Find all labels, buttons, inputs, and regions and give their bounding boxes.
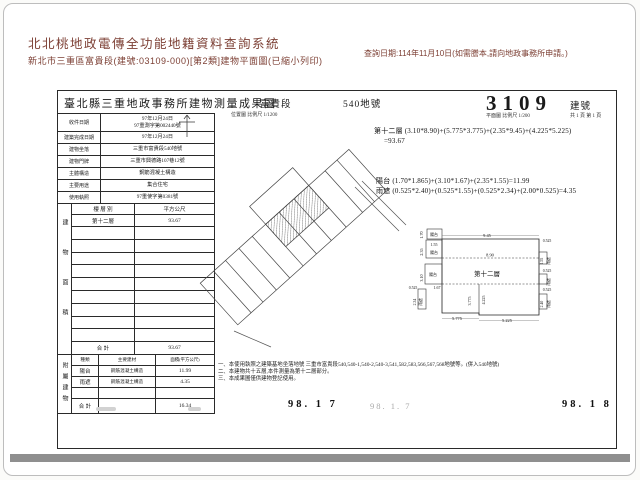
date-stamp-faint: 98. 1. 7 [370, 401, 412, 411]
document-subtitle: 新北市三重區富貴段(建號:03109-000)[第2類]建物平面圖(已縮小列印) [28, 54, 323, 67]
plan-label: 8.90 [486, 253, 494, 258]
note-line: 一、本使用執照之建築基地坐落地號 三重市富貴段540,540-1,540-2,5… [218, 362, 614, 369]
annex-area: 4.35 [156, 377, 214, 387]
plan-label: 4.225 [481, 296, 486, 305]
section-title-vertical: 附屬建物 [60, 362, 69, 406]
plan-label: 1.67 [434, 285, 441, 290]
plan-label: 0.525 [409, 286, 418, 290]
survey-form: 臺北縣三重地政事務所建物測量成果圖 富貴段 540地號 位置圖 比例尺 1/12… [57, 90, 617, 449]
parcel-number: 540地號 [343, 96, 381, 110]
column-header: 種類 [72, 355, 99, 365]
system-title: 北北桃地政電傳全功能地籍資料查詢系統 [28, 33, 280, 52]
plan-label: 雨遮 [546, 300, 551, 308]
floor-area-formula: 第十二層 (3.10*8.90)+(5.775*3.775)+(2.35*9.4… [374, 126, 571, 136]
total-label: 合 計 [72, 342, 135, 354]
plan-label: 陽台 [430, 231, 438, 237]
balcony-formula: 陽台 (1.70*1.865)+(3.10*1.67)+(2.35*1.55)=… [376, 176, 530, 186]
floor-plan-scale: 平面圖 比例尺 1/200 [486, 112, 530, 119]
row-label: 建物門牌 [58, 156, 101, 167]
building-number-unit: 建號 [570, 98, 591, 112]
floor-plan-labels: 1.70陽台2.351.55陽台9.450.5258.901.55雨遮3.10陽… [409, 231, 552, 323]
annex-kind: 雨遮 [72, 377, 99, 387]
notes-block: 一、本使用執照之建築基地坐落地號 三重市富貴段540,540-1,540-2,5… [218, 362, 614, 383]
page-count: 共 1 頁 第 1 頁 [570, 112, 601, 119]
dimension-lines [442, 236, 539, 321]
column-header: 主要建材 [99, 355, 156, 365]
row-label: 收件日期 [58, 114, 101, 131]
plan-label: 3.10 [419, 274, 424, 281]
section-name: 富貴段 [260, 96, 292, 110]
plan-label: 陽台 [429, 271, 437, 277]
plan-label: 雨遮 [418, 298, 423, 306]
plan-label: 2.34 [413, 299, 417, 306]
annex-area: 11.99 [156, 366, 214, 376]
plan-label: 0.525 [543, 288, 552, 292]
floor-name: 第十二層 [72, 215, 135, 226]
annex-kind: 陽台 [72, 366, 99, 376]
date-stamp: 98. 1 8 [562, 399, 612, 410]
table-row: 陽台 鋼筋混凝土構造 11.99 [72, 366, 214, 377]
plan-label: 2.40 [540, 301, 544, 308]
date-stamp: 98. 1 7 [288, 399, 338, 410]
plan-label: 5.775 [452, 316, 463, 321]
plan-label: 1.70 [419, 231, 424, 238]
query-date: 查詢日期:114年11月10日(如需謄本,請向地政事務所申請。) [364, 48, 568, 59]
row-label: 主要用途 [58, 180, 101, 191]
section-title-vertical: 建物面積 [60, 219, 69, 339]
north-symbol [179, 115, 195, 137]
plan-label: 2.35 [419, 248, 424, 255]
faint-stamp-mark [96, 407, 116, 411]
annex-material: 鋼筋混凝土構造 [99, 366, 156, 376]
plan-label: 雨遮 [546, 257, 551, 265]
annex-section: 附屬建物 種類 主要建材 面積(平方公尺) 陽台 鋼筋混凝土構造 11.99 雨… [58, 355, 214, 413]
row-label: 主體構造 [58, 168, 101, 179]
floor-plan: 1.70陽台2.351.55陽台9.450.5258.901.55雨遮3.10陽… [407, 225, 567, 335]
row-label: 使用執照 [58, 192, 101, 203]
column-header: 樓 層 別 [72, 204, 135, 214]
plan-label: 陽台 [430, 249, 438, 255]
faint-stamp-mark [188, 407, 201, 411]
floor-area-formula-result: =93.67 [384, 137, 405, 145]
plan-label: 雨遮 [546, 278, 551, 286]
plan-label: 1.55 [540, 258, 544, 265]
table-row: 雨遮 鋼筋混凝土構造 4.35 [72, 377, 214, 388]
parcel-strip [184, 132, 386, 325]
plan-label: 0.525 [543, 239, 552, 243]
annex-material: 鋼筋混凝土構造 [99, 377, 156, 387]
location-map [159, 109, 429, 359]
plan-label: 5.225 [502, 318, 513, 323]
table-row [72, 388, 214, 399]
total-label: 合 計 [72, 399, 99, 413]
canopy-formula: 雨遮 (0.525*2.40)+(0.525*1.55)+(0.525*2.34… [376, 186, 576, 196]
row-label: 建物坐落 [58, 144, 101, 155]
note-line: 二、本建物共十五層,本件測量為第十二層部分。 [218, 369, 614, 376]
row-label: 建築完成日期 [58, 132, 101, 143]
scan-artifact-bar [10, 454, 630, 462]
plan-label: 3.775 [467, 297, 472, 306]
plan-label: 0.525 [543, 269, 552, 273]
plan-label: 第十二層 [474, 269, 500, 278]
note-line: 三、本成果圖僅供建物登記使用。 [218, 376, 614, 383]
plan-label: 9.45 [483, 233, 491, 238]
total-value: 16.34 [156, 399, 214, 413]
plan-label: 1.55 [431, 242, 438, 247]
